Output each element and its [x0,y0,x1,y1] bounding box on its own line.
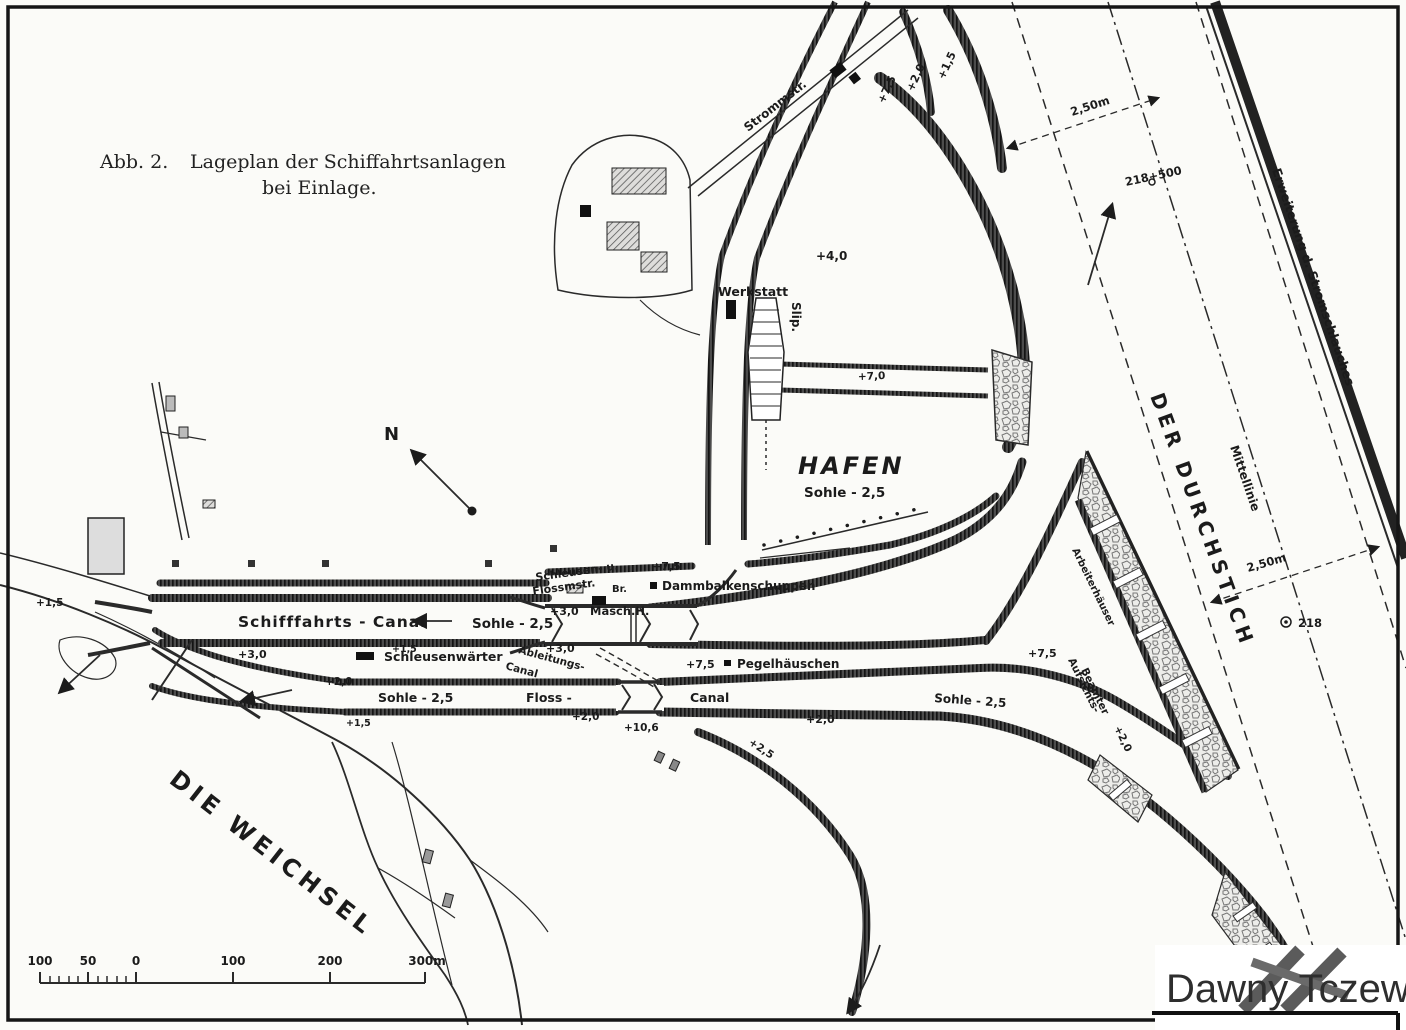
elevation-label: +3,0 [550,605,579,618]
mole-head-stonework [992,350,1032,445]
ship-canal-depth-label: Sohle - 2,5 [472,616,553,632]
elevation-label: +2,0 [572,711,599,723]
bridge-label: Br. [612,584,627,595]
lock-keeper-label: Schleusenwärter [384,649,503,664]
north-label: N [384,424,399,445]
stoplog-shed-label: Dammbalkenschuppen [662,579,815,593]
elevation-label: +1,5 [36,597,63,609]
gauge-house-building [724,660,731,666]
caption-prefix: Abb. 2. [99,151,168,173]
scale-tick-label: 100 [220,954,245,968]
large-building [88,518,124,574]
watermark-text: Dawny Tczew [1166,967,1406,1011]
scale-tick-label: 300m [408,954,446,968]
float-lock [616,682,664,712]
watermark: Dawny Tczew [1152,945,1406,1030]
elevation-label: +2,0 [806,713,835,726]
small-building [179,427,188,438]
small-building [166,396,175,411]
elevation-label: +1,5 [346,718,371,729]
station-label: 218 [1298,616,1322,630]
scanned-site-plan-page: Abb. 2. Lageplan der Schiffahrtsanlagen … [0,0,1406,1030]
float-canal-label: Floss - [526,690,572,705]
site-plan-map: Abb. 2. Lageplan der Schiffahrtsanlagen … [0,0,1406,1030]
elevation-label: +7,5 [1028,647,1057,660]
float-canal-east-label: Canal [690,690,729,705]
workshop-building [726,300,736,319]
elevation-label: +3,0 [238,648,267,661]
gauge-house-label: Pegelhäuschen [737,657,839,671]
lock-keeper-building [356,652,374,660]
ship-canal-label: Schifffahrts - Canal [238,613,427,631]
elevation-label: +4,0 [816,249,847,263]
scale-tick-label: 100 [27,954,52,968]
caption-title: Lageplan der Schiffahrtsanlagen [190,151,506,173]
workshop-label: Werkstatt [718,284,788,299]
elevation-label: +2,0 [325,676,352,688]
slipway-label: Slip. [789,302,803,332]
harbor-depth-label: Sohle - 2,5 [804,485,885,501]
machine-house-label: Masch.H. [590,604,649,618]
elevation-label: +7,5 [652,560,681,573]
scale-tick-label: 50 [80,954,97,968]
harbor-name-label: HAFEN [798,452,905,480]
caption-subtitle: bei Einlage. [262,177,377,199]
elevation-label: +7,0 [858,370,886,383]
elevation-label: +10,6 [624,722,659,734]
scale-tick-label: 0 [132,954,140,968]
float-canal-depth-label: Sohle - 2,5 [378,690,453,705]
stoplog-shed-building [650,582,657,589]
elevation-label: +7,5 [686,658,715,671]
scale-tick-label: 200 [317,954,342,968]
small-building [203,500,215,508]
